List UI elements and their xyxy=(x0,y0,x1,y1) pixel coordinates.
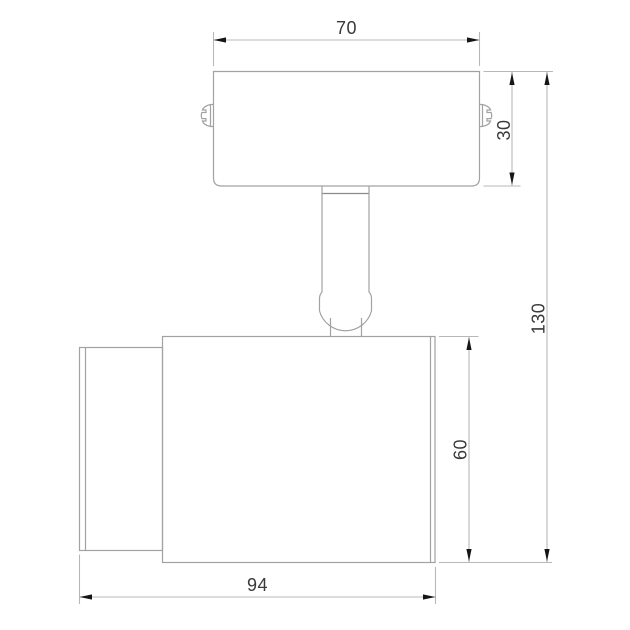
arrow-up-icon xyxy=(544,73,549,86)
dim-overall-height: 130 xyxy=(439,72,552,563)
dim-body-height-label: 60 xyxy=(451,439,471,460)
arrow-right-icon xyxy=(467,37,480,42)
dim-plate-width: 70 xyxy=(214,18,480,66)
arrow-down-icon xyxy=(509,173,514,186)
dim-body-height: 60 xyxy=(439,337,479,563)
arrow-up-icon xyxy=(509,73,514,86)
screw-right-icon xyxy=(480,105,492,127)
dim-plate-width-label: 70 xyxy=(336,18,357,38)
screw-left-icon xyxy=(201,105,213,127)
arrow-right-icon xyxy=(423,594,436,599)
stem-collar xyxy=(331,318,362,337)
arrow-left-icon xyxy=(214,37,227,42)
dim-plate-height: 30 xyxy=(484,72,554,187)
stem-arm xyxy=(320,187,372,337)
mounting-plate xyxy=(214,72,480,187)
technical-drawing-canvas: 70 30 130 xyxy=(0,0,630,630)
arrow-left-icon xyxy=(80,594,93,599)
dimension-drawing: 70 30 130 xyxy=(0,0,630,630)
dim-overall-height-label: 130 xyxy=(529,303,549,335)
lamp-front-barrel xyxy=(80,348,163,551)
dim-plate-height-label: 30 xyxy=(494,119,514,140)
fixture-outline xyxy=(80,72,492,563)
stem-ball-joint xyxy=(320,311,372,331)
arrow-up-icon xyxy=(466,338,471,351)
arrow-down-icon xyxy=(544,549,549,562)
dim-body-length-label: 94 xyxy=(247,575,268,595)
arrow-down-icon xyxy=(466,549,471,562)
lamp-body xyxy=(163,337,436,563)
